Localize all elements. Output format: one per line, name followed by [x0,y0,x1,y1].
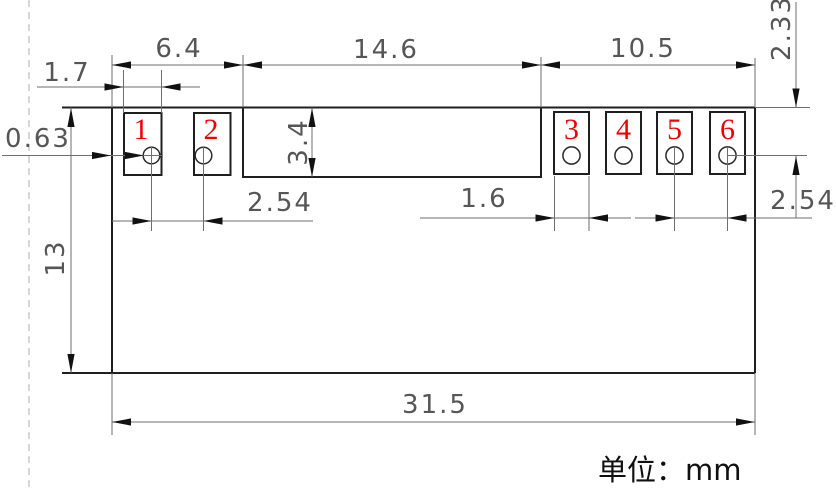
dim-top-row: 6.4 14.6 10.5 [112,34,755,69]
pad-2-number: 2 [204,113,219,146]
drawing-canvas: 1 2 3 4 5 6 6.4 14.6 10.5 1.7 0.63 13 3.… [0,0,836,490]
dim-notch-height-label: 3.4 [284,118,314,165]
dim-pin-top-offset-label: 2.33 [767,0,797,61]
dim-left-section-label: 6.4 [155,34,202,64]
pad-6-number: 6 [720,113,735,146]
dim-right-section-label: 10.5 [610,34,676,64]
dim-pin-diameter-label: 0.63 [5,124,71,154]
pad-5-number: 5 [667,113,682,146]
pad-4-number: 4 [616,113,631,146]
body-outline-lines [62,108,755,374]
dim-pin-pitch-right-label: 2.54 [770,186,836,216]
pad-1-number: 1 [134,113,149,146]
dim-notch-height: 3.4 [284,108,316,178]
dim-pin-pitch-left-label: 2.54 [247,188,313,218]
unit-note: 单位：mm [598,453,742,487]
pad-3-number: 3 [564,113,579,146]
dim-pin-pitch-left: 2.54 [112,188,313,225]
pad-3-hole [563,147,580,164]
pad-4-hole [615,147,632,164]
dim-pin-top-offset-arrowheads [792,89,799,176]
dim-center-section-label: 14.6 [353,35,419,65]
pads: 1 2 3 4 5 6 [124,112,745,175]
dim-pad-width-right: 1.6 [420,184,631,222]
dim-body-height-label: 13 [41,239,71,276]
module-outline [62,108,755,374]
dim-pad-width-right-label: 1.6 [460,184,507,214]
dim-pin-pitch-right: 2.54 [635,186,836,222]
dim-total-width: 31.5 [112,390,755,426]
dim-total-width-label: 31.5 [402,390,468,420]
dim-pad-width-left-label: 1.7 [43,58,90,88]
